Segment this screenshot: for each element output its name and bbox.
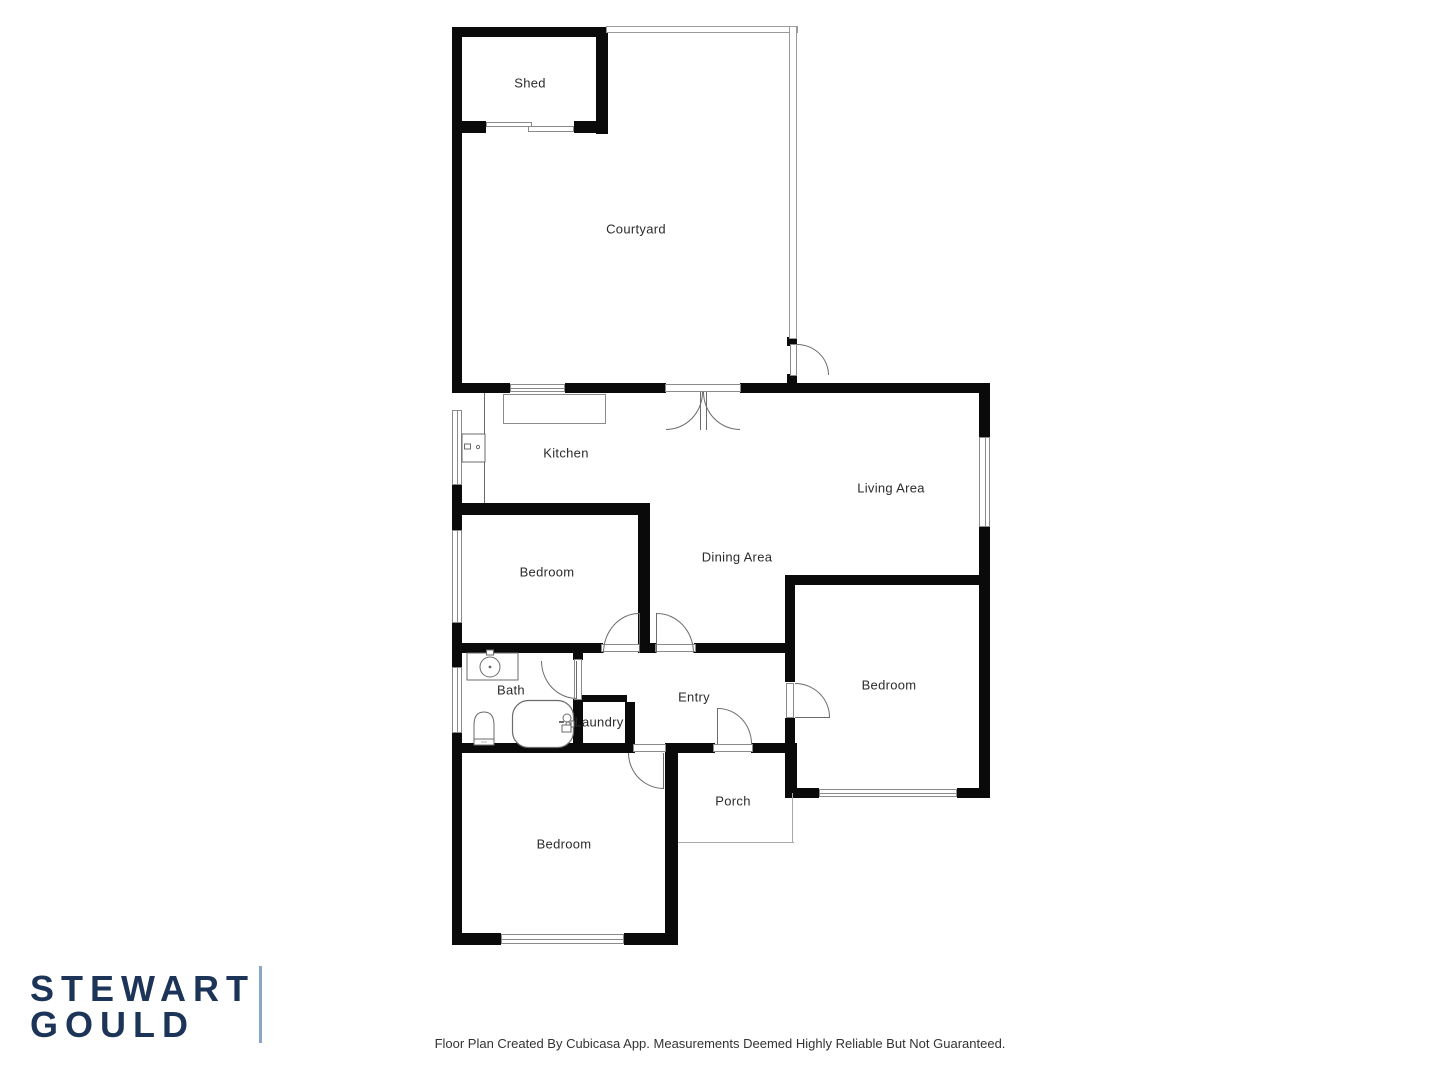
door-leaf (576, 661, 577, 699)
room-label-bedroom-middle: Bedroom (520, 565, 575, 580)
room-label-bedroom-bottom: Bedroom (537, 837, 592, 852)
wall (785, 575, 985, 585)
fence-line (606, 26, 798, 33)
wall (740, 383, 798, 393)
wall (452, 121, 486, 133)
door-leaf (700, 392, 701, 430)
window (819, 789, 957, 797)
stewart-gould-logo: STEWART GOULD (30, 971, 255, 1043)
sliding-door-panel (528, 126, 574, 132)
door-swing-arc (657, 613, 694, 653)
door (786, 683, 794, 718)
door-swing-arc (797, 344, 829, 375)
sliding-door-panel (486, 122, 532, 127)
front-door (713, 744, 753, 752)
door-leaf (706, 392, 707, 430)
wall (452, 503, 650, 515)
room-label-shed: Shed (514, 76, 546, 91)
gate-door (790, 344, 797, 376)
wall (565, 383, 666, 393)
room-label-porch: Porch (715, 794, 750, 809)
floor-plan-page: Shed Courtyard Kitchen Living Area Dinin… (0, 0, 1440, 1080)
wall (694, 643, 795, 653)
room-label-dining-area: Dining Area (702, 550, 773, 565)
window (452, 530, 462, 623)
wall (665, 743, 678, 945)
door-swing-arc (795, 683, 830, 717)
wall (787, 753, 797, 793)
wall (785, 575, 795, 682)
window (510, 384, 565, 392)
wall (979, 527, 990, 798)
bath-sink-icon (466, 649, 520, 682)
toilet-icon (470, 709, 498, 747)
room-label-courtyard: Courtyard (606, 222, 666, 237)
kitchen-counter (503, 394, 606, 424)
door-swing-arc (666, 392, 703, 430)
wall (452, 933, 501, 945)
room-label-entry: Entry (678, 690, 710, 705)
room-label-bedroom-right: Bedroom (862, 678, 917, 693)
room-label-bath: Bath (497, 683, 525, 698)
door-leaf (795, 717, 830, 718)
wall (452, 733, 462, 945)
wall (596, 27, 608, 134)
door-swing-arc (628, 753, 664, 789)
porch-outline (792, 793, 793, 843)
door-swing-arc (703, 392, 740, 430)
french-door (665, 384, 741, 392)
wall (574, 121, 608, 133)
wall (452, 27, 608, 37)
window (501, 934, 624, 944)
door-leaf (656, 613, 657, 653)
kitchen-stove-icon (461, 433, 487, 464)
laundry-tap-icon (558, 711, 574, 735)
room-label-living-area: Living Area (857, 481, 925, 496)
wall (957, 788, 985, 798)
wall (580, 695, 627, 702)
room-label-laundry: Laundry (574, 715, 623, 730)
door-swing-arc (718, 708, 752, 744)
window (979, 437, 990, 527)
logo-line1: STEWART (30, 971, 255, 1007)
window (452, 667, 462, 733)
door-swing-arc (541, 661, 577, 699)
logo-divider-line (259, 966, 262, 1043)
door-leaf (717, 708, 718, 744)
fence-line (789, 26, 797, 339)
wall (979, 383, 990, 437)
door (633, 744, 666, 752)
porch-outline (678, 842, 794, 843)
door-swing-arc (603, 613, 639, 653)
door-leaf (663, 753, 664, 789)
room-label-kitchen: Kitchen (543, 446, 588, 461)
wall (452, 383, 510, 393)
wall (452, 27, 462, 393)
wall (798, 383, 985, 393)
disclaimer-text: Floor Plan Created By Cubicasa App. Meas… (0, 1036, 1440, 1051)
wall (624, 933, 678, 945)
door-leaf (639, 613, 640, 653)
